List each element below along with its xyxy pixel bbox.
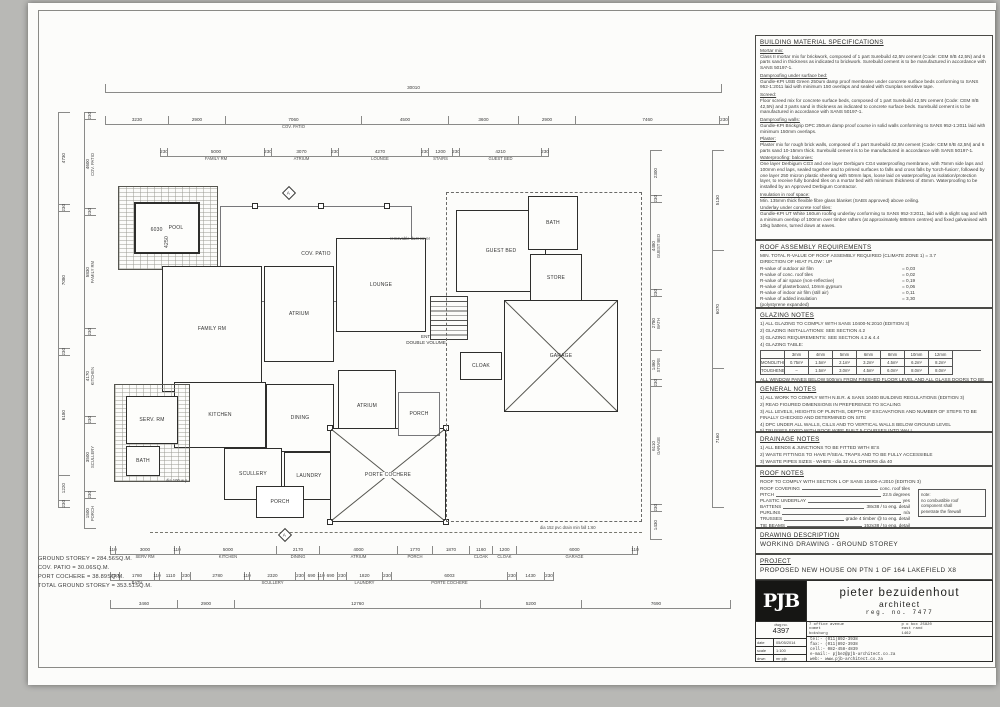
dimension: 1110	[159, 572, 181, 581]
meta-row: drwnmr pjb	[756, 655, 806, 662]
glazing-cell: 6.2m²	[905, 359, 929, 367]
dim-col-left-inner: 2304600COV. PATIO2305830FAMILY RM2304170…	[84, 112, 96, 529]
spec-paragraph: Mortar mix:Class II mortar mix for brick…	[760, 48, 988, 71]
dimension: 230	[541, 148, 548, 157]
room-label: COV. PATIO	[301, 251, 330, 257]
dimension: 3230	[105, 116, 168, 125]
drain-line	[150, 532, 642, 533]
dimension: 7080	[59, 211, 70, 348]
dim-row-top-3: 2305000FAMILY RM2303070ATRIUM2304270LOUN…	[160, 148, 549, 157]
dimension: 4270LOUNGE	[338, 148, 421, 157]
glazing-cell: 6mm	[857, 351, 881, 359]
dim-row-bottom-2: 2301780BATH110111023027801102320SCULLERY…	[110, 572, 554, 581]
project-value: PROPOSED NEW HOUSE ON PTN 1 OF 164 LAKEF…	[760, 567, 988, 574]
ent-line2: DOUBLE VOLUME	[406, 340, 446, 345]
section-glazing-notes: GLAZING NOTES 1) ALL GLAZING TO COMPLY W…	[755, 308, 993, 382]
spec-paragraph: Insulation in roof space:Min. 135mm thic…	[760, 192, 988, 203]
title-block-right-column: 7 office avenuecometboksburg p o box 258…	[807, 622, 992, 662]
glazing-table: 3mm4mm5mm6mm8mm10mm12mm MONOLITHIC ANNEA…	[760, 350, 981, 375]
section-title: DRAWING DESCRIPTION	[760, 532, 988, 539]
dimension: 1460STORE	[651, 350, 662, 379]
dimension: 5200	[480, 600, 581, 609]
rvalue-row: (polystyrene expanded)	[760, 302, 988, 308]
room-label: GUEST BED	[486, 248, 517, 254]
dimension: 1430	[516, 572, 544, 581]
pool-height-dim: 4250	[164, 236, 170, 248]
room-label: ATRIUM	[289, 311, 309, 317]
spec-paragraph: Underlay under concrete roof tiles:Gundl…	[760, 205, 988, 228]
dimension: 2780	[190, 572, 244, 581]
room-label: SERV. RM	[139, 417, 164, 423]
dimension: 230	[181, 572, 190, 581]
dimension: 1200CLOAK	[492, 546, 516, 555]
dimension: 2300	[651, 150, 662, 195]
glazing-cell: MONOLITHIC ANNEALED GLASS	[761, 359, 785, 367]
dimension: 1430	[651, 511, 662, 540]
glazing-cell: –	[785, 367, 809, 375]
room-family: FAMILY RM	[162, 266, 262, 392]
dimension: 230	[544, 572, 553, 581]
spec-text: Gundle-KPI USB Green 250um damp proof me…	[760, 79, 978, 90]
spec-text: Gundle-KPI Brickgrip DPC 250um damp proo…	[760, 123, 985, 134]
dimension: 3600	[448, 116, 518, 125]
room-label: STORE	[547, 275, 565, 281]
dimension: 1220	[59, 475, 70, 500]
street-address: 7 office avenuecometboksburg	[807, 622, 900, 636]
dimension: 230	[264, 148, 271, 157]
dimension: 230	[651, 379, 662, 386]
room-label: LAUNDRY	[296, 473, 321, 479]
address-row: 7 office avenuecometboksburg p o box 258…	[807, 622, 992, 637]
dimension: 3070ATRIUM	[271, 148, 331, 157]
glazing-cell: 8.0m²	[905, 367, 929, 375]
section-roof-assembly: ROOF ASSEMBLY REQUIREMENTS MIN. TOTAL R-…	[755, 240, 993, 308]
firewall-note-line: penetrate the firewall	[921, 509, 983, 515]
dimension: 4000ATRIUM	[319, 546, 397, 555]
section-general-notes: GENERAL NOTES 1) ALL WORK TO COMPLY WITH…	[755, 382, 993, 432]
room-label: SCULLERY	[239, 471, 267, 477]
glazing-cell: 0.75m²	[785, 359, 809, 367]
room-label: PORCH	[270, 499, 289, 505]
dimension: 230	[85, 328, 96, 335]
general-note: 1) ALL WORK TO COMPLY WITH N.B.R. & SANS…	[760, 395, 988, 401]
patio-column	[318, 203, 324, 209]
dimension: 4210GUEST BED	[459, 148, 541, 157]
dimension: 1500PORCH	[85, 498, 96, 529]
drainage-note: 3) WASTE PIPES SIZES - WHB'S - dia 32 AL…	[760, 459, 988, 465]
dimension: 3460	[110, 600, 177, 609]
room-label: CLOAK	[472, 363, 490, 369]
spec-text: One layer Derbigum CG3 and one layer Der…	[760, 161, 985, 189]
dim-col-left-outer: 4730230708023061801220230	[58, 112, 70, 508]
room-porte-cochere: PORTE COCHERE	[330, 428, 446, 522]
glazing-cell: 6.0m²	[881, 367, 905, 375]
area-summary-line: GROUND STOREY = 284.56SQ.M.	[38, 556, 152, 562]
glazing-cell: 8mm	[881, 351, 905, 359]
architect-profession: architect	[879, 599, 920, 609]
area-summary: GROUND STOREY = 284.56SQ.M.COV. PATIO = …	[38, 556, 152, 592]
glazing-note: 4) GLAZING TABLE:	[760, 342, 988, 348]
spec-text: Plaster mix for rough brick walls, compo…	[760, 142, 984, 153]
dimension: 2320SCULLERY	[249, 572, 295, 581]
glazing-cell: 4.5m²	[881, 359, 905, 367]
dimension: 30010	[105, 84, 721, 93]
postal-address: p o box 25820east rand1462	[900, 622, 993, 636]
title-block-left-column: dwg no. 4397 date05/05/2014 scale1:100 d…	[756, 622, 807, 662]
dimension: 230	[719, 116, 728, 125]
dimension: 4480GUEST BED	[651, 202, 662, 289]
dimension: 230	[85, 208, 96, 215]
dimension: 2780BATH	[651, 296, 662, 350]
meta-row: scale1:100	[756, 647, 806, 655]
roof-assembly-intro2: DIRECTION OF HEAT FLOW : UP	[760, 259, 988, 265]
address-line: 1462	[902, 632, 991, 636]
dimension: 230	[85, 416, 96, 423]
dimension: 230	[295, 572, 304, 581]
dimension: 2170DINING	[276, 546, 319, 555]
dimension: 2900	[168, 116, 225, 125]
dimension: 230	[651, 504, 662, 511]
dimension: 12760	[234, 600, 480, 609]
dimension: 6180	[59, 355, 70, 475]
dim-row-top-2: 323029007060COV. PATIO450036002900746023…	[105, 116, 729, 125]
section-letter: A	[287, 190, 290, 195]
address-line: boksburg	[809, 632, 898, 636]
dim-col-right-inner: 23002304480GUEST BED2302780BATH1460STORE…	[650, 150, 662, 540]
title-block: PJB pieter bezuidenhout architect reg. n…	[755, 580, 993, 662]
contact-lines: tel:- (011)892-3938fax:- (011)892-3938ce…	[807, 637, 992, 664]
wastepipe-annotation: dia 100 w.p.	[166, 478, 188, 483]
section-title: PROJECT	[760, 558, 988, 565]
room-label: GARAGE	[550, 353, 573, 359]
glazing-cell: 1.5m²	[809, 359, 833, 367]
room-lounge: LOUNGE	[336, 238, 426, 332]
section-title: BUILDING MATERIAL SPECIFICATIONS	[760, 39, 988, 46]
dimension: 230	[85, 112, 96, 119]
general-note: 3) ALL LEVELS, HEIGHTS OF PLINTHS, DEPTH…	[760, 409, 988, 421]
dimension: 6070	[713, 250, 724, 368]
rvalue-rows: R-value of outdoor air film= 0,03 R-valu…	[760, 266, 988, 308]
dimension: 5130	[713, 150, 724, 250]
section-letter: A	[283, 532, 286, 537]
general-note: 4) DPC UNDER ALL WALLS, CILLS AND TO VER…	[760, 422, 988, 428]
glazing-cell: TOUGHENED SAFETY GLASS	[761, 367, 785, 375]
section-drawing-description: DRAWING DESCRIPTION WORKING DRAWING - GR…	[755, 528, 993, 554]
spec-paragraph: Waterproofing: balconies:One layer Derbi…	[760, 155, 988, 189]
dimension: 230	[452, 148, 459, 157]
room-label: DINING	[291, 415, 310, 421]
area-summary-line: COV. PATIO = 30.06SQ.M.	[38, 565, 152, 571]
dimension: 1870	[432, 546, 469, 555]
room-atrium-1: ATRIUM	[264, 266, 334, 362]
dimension: 690	[304, 572, 318, 581]
patio-column	[252, 203, 258, 209]
glazing-cell: 2.1m²	[833, 359, 857, 367]
drawing-description-value: WORKING DRAWING - GROUND STOREY	[760, 541, 988, 548]
glazing-cell: 12mm	[929, 351, 953, 359]
room-porch-bottom: PORCH	[256, 486, 304, 518]
glazing-cell: 10mm	[905, 351, 929, 359]
glazing-note: 2) GLAZING INSTALLATIONS: SEE SECTION 4.…	[760, 328, 988, 334]
dimension: 230	[651, 195, 662, 202]
spec-text: Min. 135mm thick flexible fibre glass bl…	[760, 198, 919, 203]
room-label: PORTE COCHERE	[363, 472, 413, 478]
drain-annotation: dia 152 pvc drain min fall 1:60	[540, 525, 596, 530]
glazing-table-header: 3mm4mm5mm6mm8mm10mm12mm	[761, 351, 981, 359]
dimension: 7690	[581, 600, 730, 609]
spec-text: Floor screed mix for concrete surface be…	[760, 98, 979, 114]
room-label: FAMILY RM	[198, 326, 226, 332]
glazing-table-row-annealed: MONOLITHIC ANNEALED GLASS0.75m²1.5m²2.1m…	[761, 359, 981, 367]
dim-col-right-outer: 513060707160	[712, 150, 724, 508]
glazing-cell: 5mm	[833, 351, 857, 359]
dimension: 230	[331, 148, 338, 157]
dimension: 7160	[713, 368, 724, 508]
spec-text: Gundle-KPI UT White 160um roofing underl…	[760, 211, 987, 227]
dimension: 4600COV. PATIO	[85, 119, 96, 208]
room-label: KITCHEN	[208, 412, 231, 418]
room-bath-2: BATH	[126, 446, 160, 476]
dimension: 3000SERV RM	[115, 546, 174, 555]
dimension: 7460	[575, 116, 719, 125]
room-label: ATRIUM	[357, 403, 377, 409]
firewall-note-box: note:no combustible roofcomponent shallp…	[918, 489, 986, 517]
spec-paragraph: Damproofing under surface bed:Gundle-KPI…	[760, 73, 988, 90]
spec-text: Class II mortar mix for brickwork, compo…	[760, 54, 986, 70]
glazing-note: 1) ALL GLAZING TO COMPLY WITH SANS 10400…	[760, 321, 988, 327]
section-project: PROJECT PROPOSED NEW HOUSE ON PTN 1 OF 1…	[755, 554, 993, 580]
room-serv-rm: SERV. RM	[126, 396, 178, 444]
dimension: 1820LAUNDRY	[346, 572, 382, 581]
dimension: 690	[323, 572, 337, 581]
title-block-details: dwg no. 4397 date05/05/2014 scale1:100 d…	[756, 622, 992, 662]
general-notes-list: 1) ALL WORK TO COMPLY WITH N.B.R. & SANS…	[760, 395, 988, 434]
section-title: GLAZING NOTES	[760, 312, 988, 319]
scanned-drawing-page: 30010 323029007060COV. PATIO450036002900…	[0, 0, 1000, 707]
section-drainage-notes: DRAINAGE NOTES 1) ALL BENDS & JUNCTIONS …	[755, 432, 993, 466]
pjb-logo: PJB	[756, 581, 806, 621]
architect-reg-no: reg. no. 7477	[866, 609, 934, 616]
patio-column	[384, 203, 390, 209]
glazing-cell: 4mm	[809, 351, 833, 359]
dimension: 230	[59, 500, 70, 508]
section-title: ROOF ASSEMBLY REQUIREMENTS	[760, 244, 988, 251]
dimension: 230	[59, 204, 70, 211]
dwg-number-cell: dwg no. 4397	[756, 622, 806, 639]
dimension: 4730	[59, 112, 70, 204]
dimension: 1160CLOAK	[469, 546, 492, 555]
dim-row-overall: 30010	[105, 84, 722, 93]
dimension: 7060COV. PATIO	[225, 116, 361, 125]
glazing-cell: 1.5m²	[809, 367, 833, 375]
spec-paragraph: Damproofing walls:Gundle-KPI Brickgrip D…	[760, 117, 988, 134]
glazing-cell: 8.0m²	[929, 367, 953, 375]
dim-row-bottom-3: 346029001276052007690	[110, 600, 731, 609]
dimension: 6003PORTE COCHERE	[391, 572, 507, 581]
spec-paragraph: Plaster:Plaster mix for rough brick wall…	[760, 136, 988, 153]
area-summary-line: PORT COCHERE = 38.89SQ.M.	[38, 574, 152, 580]
room-dining: DINING	[266, 384, 334, 452]
room-label: BATH	[546, 220, 560, 226]
dimension: 110	[632, 546, 637, 555]
dimension: 230	[85, 491, 96, 498]
room-garage: GARAGE	[504, 300, 618, 412]
dimension: 230	[507, 572, 516, 581]
dim-row-bottom-1: 1103000SERV RM1105000KITCHEN2170DINING40…	[110, 546, 638, 555]
dimension: 4500	[361, 116, 448, 125]
glazing-notes-list: 1) ALL GLAZING TO COMPLY WITH SANS 10400…	[760, 321, 988, 348]
spec-paragraphs: Mortar mix:Class II mortar mix for brick…	[760, 48, 988, 228]
section-roof-notes: ROOF NOTES ROOF TO COMPLY WITH SECTION L…	[755, 466, 993, 528]
section-title: ROOF NOTES	[760, 470, 988, 477]
section-title: GENERAL NOTES	[760, 386, 988, 393]
room-label: BATH	[136, 458, 150, 464]
dwg-number-value: 4397	[756, 627, 806, 635]
glazing-cell: 4.5m²	[857, 367, 881, 375]
room-label: PORCH	[409, 411, 428, 417]
dimension: 6000GARAGE	[516, 546, 632, 555]
area-summary-line: TOTAL GROUND STOREY = 353.51SQ.M.	[38, 583, 152, 589]
spec-paragraph: Screed:Floor screed mix for concrete sur…	[760, 92, 988, 115]
glazing-cell: 3.0m²	[833, 367, 857, 375]
section-title: DRAINAGE NOTES	[760, 436, 988, 443]
drainage-note: 1) ALL BENDS & JUNCTIONS TO BE FITTED WI…	[760, 445, 988, 451]
roof-notes-intro: ROOF TO COMPLY WITH SECTION L OF SANS 10…	[760, 479, 988, 485]
architect-name-cell: pieter bezuidenhout architect reg. no. 7…	[806, 581, 992, 621]
glazing-cell: 3mm	[785, 351, 809, 359]
dimension: 230	[337, 572, 346, 581]
dimension: 5830FAMILY RM	[85, 215, 96, 328]
dimension: 1770PORCH	[397, 546, 432, 555]
dimension: 5000KITCHEN	[179, 546, 276, 555]
dimension: 6110GARAGE	[651, 386, 662, 504]
dimension: 4170KITCHEN	[85, 335, 96, 416]
glazing-cell: 3.2m²	[857, 359, 881, 367]
general-note: 2) READ FIGURED DIMENSIONS IN PREFERENCE…	[760, 402, 988, 408]
drainage-note: 2) WASTE FITTINGS TO HAVE P/SEAL TRAPS A…	[760, 452, 988, 458]
dimension: 1200STAIRS	[428, 148, 452, 157]
title-block-header: PJB pieter bezuidenhout architect reg. n…	[756, 581, 992, 622]
meta-rows: date05/05/2014 scale1:100 drwnmr pjb	[756, 639, 806, 662]
dimension: 230	[651, 289, 662, 296]
dimension: 3500SCULLERY	[85, 423, 96, 491]
dimension: 230	[59, 348, 70, 355]
dimension: 5000FAMILY RM	[167, 148, 264, 157]
glazing-note: 3) GLAZING REQUIREMENTS: SEE SECTION 4.2…	[760, 335, 988, 341]
architect-name: pieter bezuidenhout	[839, 587, 959, 599]
dimension: 230	[382, 572, 391, 581]
dimension: 2900	[177, 600, 234, 609]
room-pool: 6030 4250 POOL	[134, 202, 200, 254]
pool-width-dim: 6030	[151, 227, 163, 233]
section-building-material-specs: BUILDING MATERIAL SPECIFICATIONS Mortar …	[755, 35, 993, 240]
meta-row: date05/05/2014	[756, 639, 806, 647]
duct-annotation: removable duct cover	[390, 236, 430, 241]
contact-line: web:- www.pjb-architect.co.za	[810, 658, 989, 663]
dimension: 230	[160, 148, 167, 157]
room-label: LOUNGE	[370, 282, 392, 288]
ent-line1: ENT.	[421, 334, 431, 339]
glazing-cell	[761, 351, 785, 359]
glazing-cell: 8.2m²	[929, 359, 953, 367]
room-label: POOL	[169, 225, 184, 231]
dimension: 2900	[518, 116, 575, 125]
dimension: 230	[421, 148, 428, 157]
glazing-table-row-toughened: TOUGHENED SAFETY GLASS–1.5m²3.0m²4.5m²6.…	[761, 367, 981, 375]
